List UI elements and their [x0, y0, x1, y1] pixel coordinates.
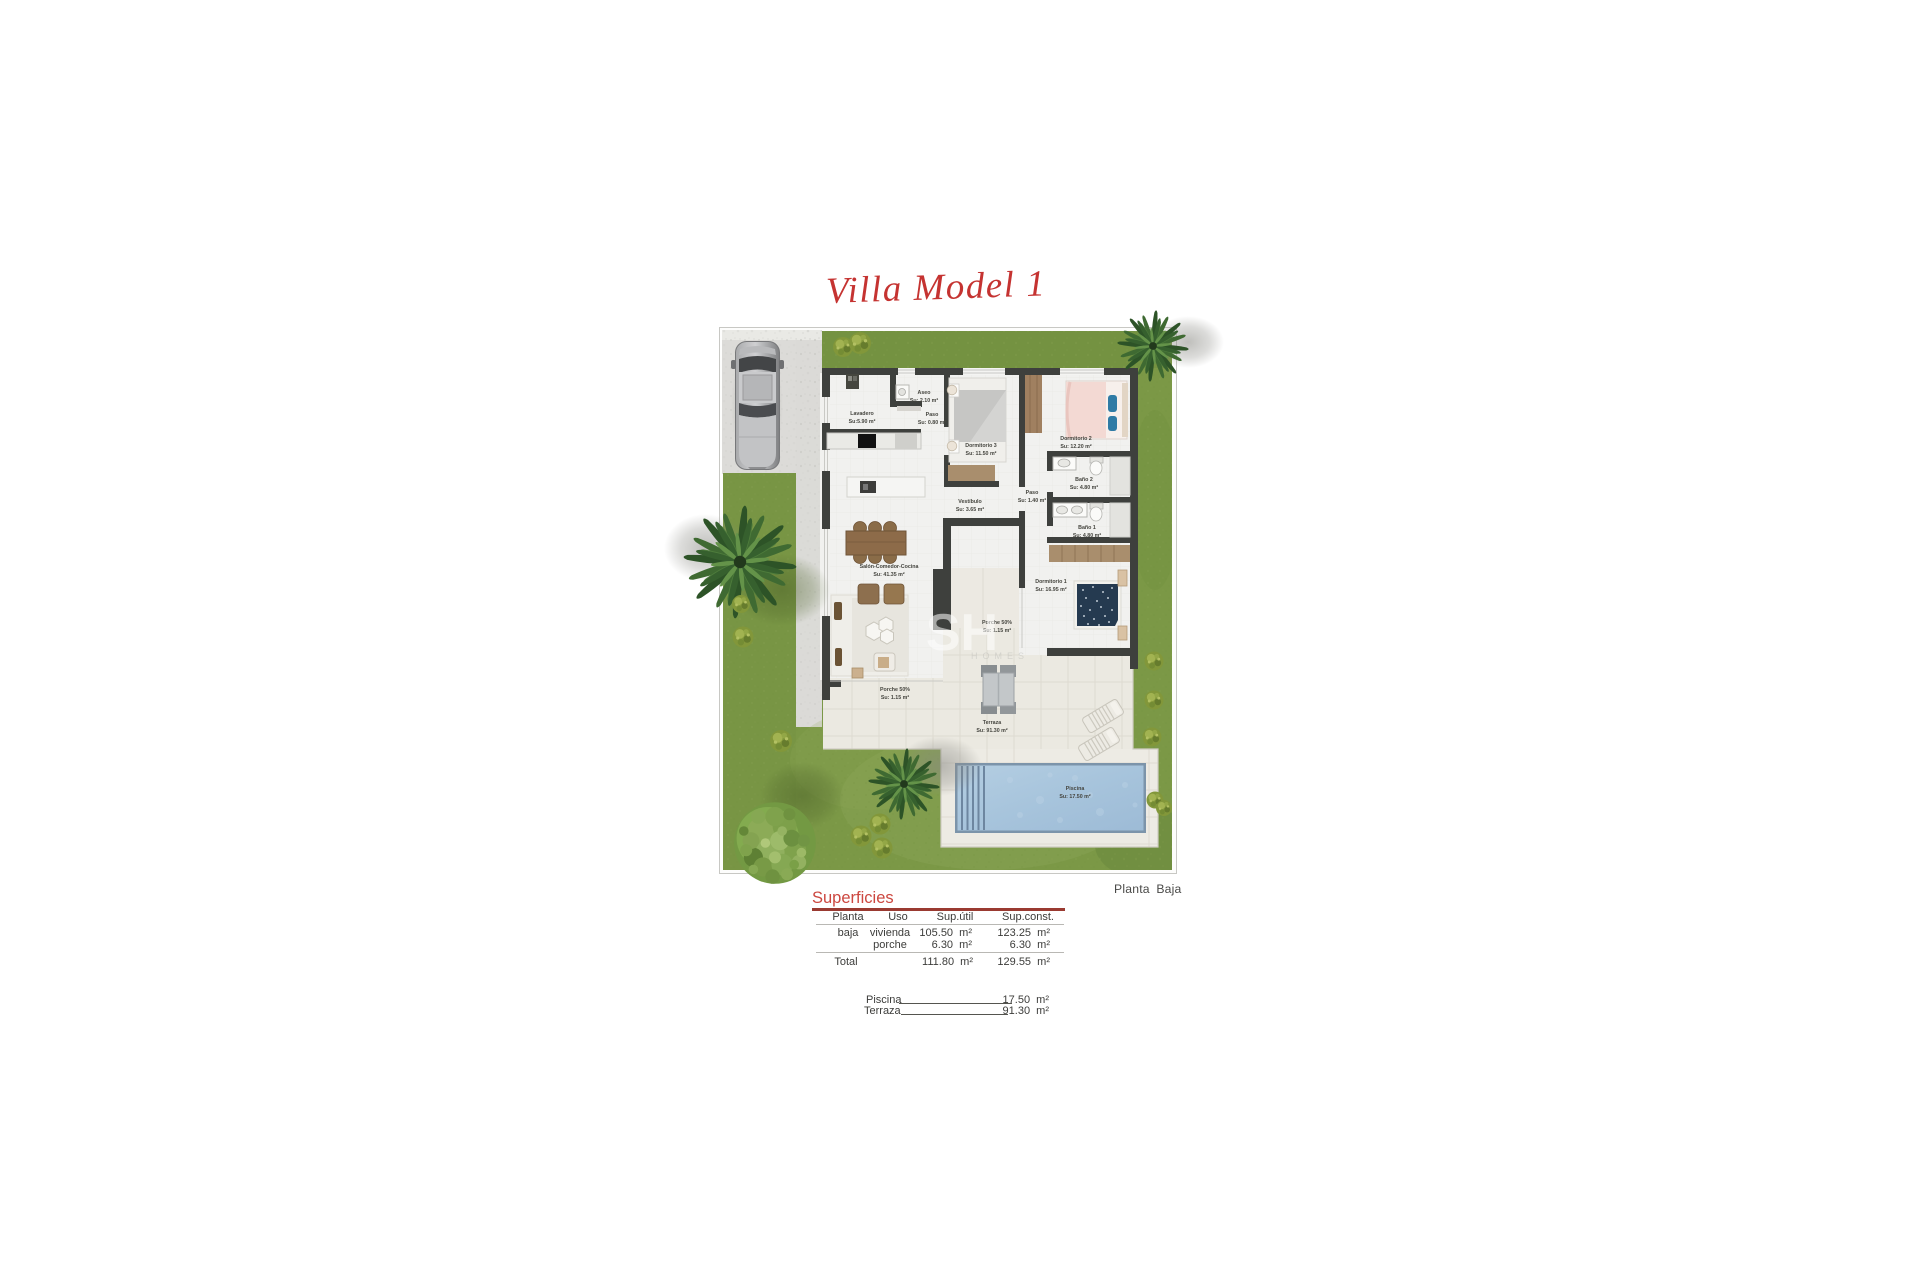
- svg-text:HOMES: HOMES: [971, 651, 1029, 661]
- svg-text:Terraza: Terraza: [983, 720, 1002, 726]
- svg-text:Su: 1.40 m²: Su: 1.40 m²: [1018, 498, 1046, 504]
- svg-text:Lavadero: Lavadero: [850, 411, 874, 417]
- svg-text:Paso: Paso: [926, 412, 939, 418]
- svg-text:Su: 11.50 m²: Su: 11.50 m²: [966, 451, 997, 457]
- svg-text:Baño 2: Baño 2: [1075, 477, 1093, 483]
- svg-text:Su: 41.35 m²: Su: 41.35 m²: [873, 572, 904, 578]
- svg-text:Salón-Comedor-Cocina: Salón-Comedor-Cocina: [860, 564, 919, 570]
- svg-text:Su: 16.95 m²: Su: 16.95 m²: [1035, 587, 1066, 593]
- svg-text:Su: 4.80 m²: Su: 4.80 m²: [1070, 485, 1098, 491]
- svg-text:Baño 1: Baño 1: [1078, 525, 1096, 531]
- svg-text:Su: 0.80 m²: Su: 0.80 m²: [918, 420, 946, 426]
- svg-text:Su: 91.30 m²: Su: 91.30 m²: [976, 728, 1007, 734]
- svg-text:Su: 12.20 m²: Su: 12.20 m²: [1060, 444, 1091, 450]
- svg-text:Paso: Paso: [1026, 490, 1039, 496]
- svg-text:Su:5.90 m²: Su:5.90 m²: [849, 419, 876, 425]
- svg-text:Su: 3.65 m²: Su: 3.65 m²: [956, 507, 984, 513]
- svg-text:Dormitorio 2: Dormitorio 2: [1060, 436, 1092, 442]
- svg-text:Su: 1.15 m²: Su: 1.15 m²: [881, 695, 909, 701]
- svg-text:Dormitorio 3: Dormitorio 3: [965, 443, 997, 449]
- svg-text:Porche 50%: Porche 50%: [880, 687, 910, 693]
- svg-text:Aseo: Aseo: [918, 390, 932, 396]
- svg-text:Su: 4.80 m²: Su: 4.80 m²: [1073, 533, 1101, 539]
- svg-text:Dormitorio 1: Dormitorio 1: [1035, 579, 1067, 585]
- svg-text:Su: 2.10 m²: Su: 2.10 m²: [910, 398, 938, 404]
- svg-text:Vestíbulo: Vestíbulo: [958, 499, 982, 505]
- svg-text:Su: 17.50 m²: Su: 17.50 m²: [1059, 794, 1090, 800]
- svg-text:Piscina: Piscina: [1066, 786, 1085, 792]
